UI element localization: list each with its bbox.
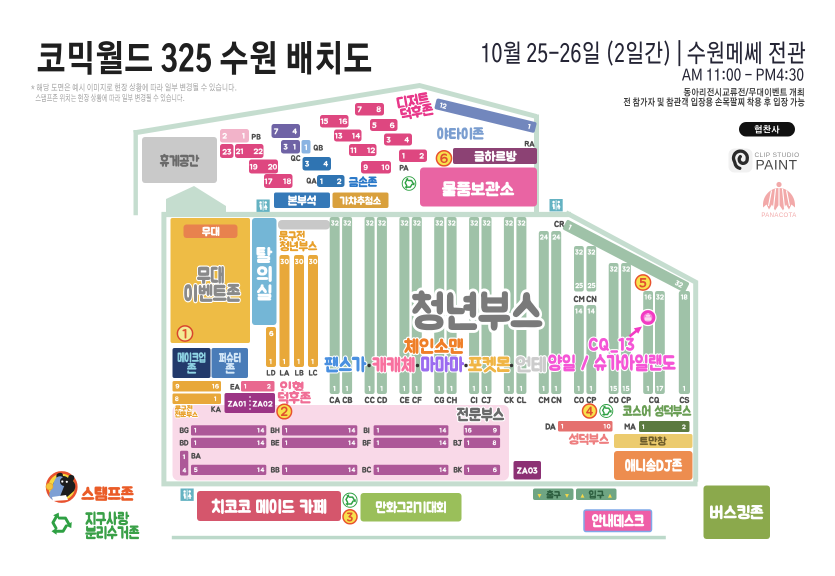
svg-text:스탬프존: 스탬프존 <box>81 486 134 504</box>
svg-text:가챠추첨소: 가챠추첨소 <box>340 196 382 208</box>
svg-text:1: 1 <box>646 386 650 393</box>
svg-text:1: 1 <box>507 386 511 393</box>
svg-text:18: 18 <box>283 178 291 186</box>
svg-text:CS: CS <box>679 396 689 405</box>
svg-text:물품보관소: 물품보관소 <box>442 180 514 199</box>
svg-text:1: 1 <box>311 359 315 366</box>
svg-text:14: 14 <box>257 428 264 435</box>
svg-text:전문부스: 전문부스 <box>175 411 198 419</box>
svg-text:PA: PA <box>399 165 409 173</box>
svg-text:QB: QB <box>313 145 323 153</box>
svg-text:CB: CB <box>342 396 353 405</box>
svg-text:6: 6 <box>440 152 448 166</box>
svg-text:14: 14 <box>348 440 355 447</box>
svg-text:분리수거존: 분리수거존 <box>85 525 139 542</box>
svg-text:EA: EA <box>230 384 240 392</box>
svg-text:▼: ▼ <box>564 493 570 499</box>
svg-text:14: 14 <box>574 309 582 316</box>
svg-text:32: 32 <box>342 221 352 228</box>
svg-text:글하르방: 글하르방 <box>474 150 517 164</box>
svg-text:1: 1 <box>484 386 488 393</box>
svg-text:CQ: CQ <box>649 396 660 405</box>
svg-text:1: 1 <box>437 386 441 393</box>
svg-text:32: 32 <box>412 221 422 228</box>
svg-text:14: 14 <box>348 428 355 435</box>
svg-text:CP: CP <box>621 396 632 405</box>
svg-text:12: 12 <box>367 147 375 155</box>
svg-text:16: 16 <box>212 384 220 391</box>
svg-text:성덕부스: 성덕부스 <box>569 433 609 447</box>
svg-text:의: 의 <box>257 265 273 285</box>
svg-text:협찬사: 협찬사 <box>754 125 780 135</box>
svg-text:32: 32 <box>482 221 492 228</box>
svg-text:KA: KA <box>211 406 222 414</box>
svg-text:1: 1 <box>367 386 371 393</box>
svg-text:CO: CO <box>574 396 584 405</box>
svg-text:6: 6 <box>269 331 274 338</box>
svg-text:▼: ▼ <box>537 493 543 499</box>
svg-text:팬스가: 팬스가 <box>324 356 366 375</box>
svg-text:MA: MA <box>624 423 636 432</box>
svg-text:30: 30 <box>295 259 303 266</box>
svg-text:무대: 무대 <box>202 227 220 239</box>
svg-text:2: 2 <box>681 424 686 431</box>
svg-text:32: 32 <box>377 221 387 228</box>
svg-text:32: 32 <box>655 295 665 302</box>
svg-text:1: 1 <box>345 386 349 393</box>
svg-text:14: 14 <box>257 467 264 474</box>
svg-text:BA: BA <box>191 453 201 461</box>
svg-text:17: 17 <box>655 386 663 393</box>
svg-text:1: 1 <box>183 454 186 461</box>
svg-text:▲: ▲ <box>607 493 613 499</box>
svg-text:4: 4 <box>323 161 328 169</box>
svg-text:3: 3 <box>386 136 390 144</box>
svg-text:2: 2 <box>419 153 424 161</box>
svg-text:애니송DJ존: 애니송DJ존 <box>625 458 683 475</box>
svg-text:5: 5 <box>371 122 377 130</box>
svg-text:QC: QC <box>290 155 301 163</box>
svg-text:1: 1 <box>472 386 476 393</box>
svg-text:전문부스: 전문부스 <box>457 406 505 424</box>
svg-text:7: 7 <box>357 106 362 114</box>
svg-text:16: 16 <box>465 428 473 435</box>
svg-text:32: 32 <box>365 221 375 228</box>
svg-text:코믹월드 325 수원 배치도: 코믹월드 325 수원 배치도 <box>37 40 373 79</box>
svg-text:스탬프존 위치는 현장 상황에 따라 일부 변경될 수 있습: 스탬프존 위치는 현장 상황에 따라 일부 변경될 수 있습니다. <box>35 93 185 103</box>
svg-text:휴게공간: 휴게공간 <box>160 154 200 169</box>
svg-text:1: 1 <box>194 428 197 435</box>
svg-text:7: 7 <box>274 128 279 136</box>
svg-text:ZA03: ZA03 <box>517 467 538 476</box>
svg-text:1: 1 <box>285 467 288 474</box>
svg-text:덕후존: 덕후존 <box>277 391 311 406</box>
svg-text:18: 18 <box>680 295 688 302</box>
svg-text:BD: BD <box>179 440 189 448</box>
svg-text:▲: ▲ <box>580 493 586 499</box>
svg-text:30: 30 <box>280 259 288 266</box>
svg-text:1: 1 <box>519 386 523 393</box>
svg-text:LA: LA <box>280 370 290 378</box>
svg-text:CF: CF <box>412 396 422 405</box>
svg-text:ZA01: ZA01 <box>228 401 247 409</box>
svg-text:1: 1 <box>402 153 405 161</box>
svg-text:CN: CN <box>586 295 597 304</box>
svg-text:8: 8 <box>175 396 179 403</box>
svg-text:4: 4 <box>292 128 297 136</box>
svg-text:안내데스크: 안내데스크 <box>592 513 645 530</box>
svg-text:CJ: CJ <box>481 396 492 405</box>
svg-text:32: 32 <box>621 267 631 274</box>
svg-text:1: 1 <box>449 386 453 393</box>
svg-text:2: 2 <box>222 133 227 141</box>
svg-text:1: 1 <box>414 386 418 393</box>
svg-text:15: 15 <box>609 386 618 393</box>
svg-text:1: 1 <box>304 144 307 152</box>
svg-text:8: 8 <box>376 106 381 114</box>
svg-text:9: 9 <box>363 164 368 172</box>
svg-text:존: 존 <box>225 362 235 376</box>
svg-text:14: 14 <box>440 440 447 447</box>
svg-text:4: 4 <box>181 467 186 474</box>
svg-text:24: 24 <box>540 235 548 242</box>
svg-text:1: 1 <box>682 386 686 393</box>
svg-text:1: 1 <box>467 467 470 474</box>
svg-text:25: 25 <box>575 283 584 290</box>
svg-text:8: 8 <box>493 440 497 447</box>
svg-text:5: 5 <box>194 467 198 474</box>
svg-text:32: 32 <box>517 221 527 228</box>
svg-text:17: 17 <box>264 178 272 186</box>
svg-text:출구: 출구 <box>546 490 561 500</box>
svg-text:CM: CM <box>538 396 549 405</box>
svg-text:CC: CC <box>364 396 375 405</box>
svg-text:전 참가자 및 참관객 입장용 손목팔찌 착용 후 입장 가: 전 참가자 및 참관객 입장용 손목팔찌 착용 후 입장 가능 <box>623 97 805 108</box>
svg-text:CL: CL <box>516 396 526 405</box>
svg-text:1: 1 <box>554 386 558 393</box>
svg-text:2: 2 <box>266 384 271 391</box>
svg-text:PAINT: PAINT <box>755 157 797 172</box>
svg-text:BI: BI <box>363 427 370 435</box>
svg-text:CD: CD <box>377 396 388 405</box>
svg-text:19: 19 <box>250 163 258 171</box>
svg-text:1: 1 <box>293 144 296 152</box>
svg-text:9: 9 <box>175 384 179 391</box>
svg-text:32: 32 <box>504 221 514 228</box>
svg-text:만화그리기대회: 만화그리기대회 <box>376 500 447 515</box>
svg-text:ZA02: ZA02 <box>252 401 272 409</box>
svg-text:BE: BE <box>271 440 280 448</box>
svg-text:야타이존: 야타이존 <box>437 127 484 142</box>
svg-text:이벤트존: 이벤트존 <box>184 283 241 306</box>
svg-text:32: 32 <box>609 267 619 274</box>
svg-text:1: 1 <box>242 133 245 141</box>
svg-text:AM 11:00 - PM4:30: AM 11:00 - PM4:30 <box>681 68 804 85</box>
svg-text:1: 1 <box>214 396 217 403</box>
svg-text:1: 1 <box>285 440 288 447</box>
svg-text:2: 2 <box>280 406 288 419</box>
svg-text:1: 1 <box>320 178 323 186</box>
svg-text:1: 1 <box>402 386 406 393</box>
svg-text:4: 4 <box>404 136 409 144</box>
svg-text:24: 24 <box>552 235 560 242</box>
svg-text:14: 14 <box>352 132 360 140</box>
svg-text:버스킹존: 버스킹존 <box>709 504 763 522</box>
svg-text:1: 1 <box>269 359 273 366</box>
svg-text:1: 1 <box>377 428 380 435</box>
svg-text:CA: CA <box>329 396 340 405</box>
svg-text:* 해당 도면은 예시 이미지로 현장 상황에 따라 일부: * 해당 도면은 예시 이미지로 현장 상황에 따라 일부 변경될 수 있습니다… <box>31 83 237 93</box>
svg-text:CN: CN <box>551 396 562 405</box>
svg-text:PB: PB <box>251 134 261 142</box>
svg-text:20: 20 <box>268 163 279 171</box>
svg-text:CG: CG <box>434 396 444 405</box>
svg-text:체인소맨: 체인소맨 <box>404 338 464 357</box>
svg-text:32: 32 <box>574 250 584 257</box>
svg-text:4: 4 <box>586 406 594 419</box>
svg-text:14: 14 <box>440 467 447 474</box>
svg-text:청년부스: 청년부스 <box>412 290 543 338</box>
svg-text:1: 1 <box>380 386 384 393</box>
svg-text:LD: LD <box>266 370 276 378</box>
svg-text:탈: 탈 <box>256 246 273 266</box>
svg-text:1: 1 <box>297 359 301 366</box>
svg-text:1: 1 <box>332 386 336 393</box>
svg-text:1: 1 <box>642 424 645 431</box>
svg-text:PANACOTA: PANACOTA <box>761 213 796 219</box>
svg-text:1: 1 <box>577 386 581 393</box>
svg-text:1: 1 <box>589 386 593 393</box>
svg-text:23: 23 <box>222 148 231 156</box>
svg-text:3: 3 <box>305 161 309 169</box>
svg-text:22: 22 <box>253 148 263 156</box>
svg-text:QA: QA <box>306 178 317 186</box>
svg-text:1: 1 <box>181 327 188 341</box>
svg-text:32: 32 <box>434 221 444 228</box>
svg-text:LB: LB <box>295 370 304 378</box>
svg-text:동아리전시교류전/무대이벤트 개최: 동아리전시교류전/무대이벤트 개최 <box>683 88 804 98</box>
svg-text:3: 3 <box>347 511 354 524</box>
svg-text:언테: 언테 <box>515 355 547 375</box>
svg-text:입구: 입구 <box>589 490 605 500</box>
svg-text:치코코 메이드 카페: 치코코 메이드 카페 <box>211 498 326 517</box>
svg-text:10: 10 <box>381 164 390 172</box>
svg-text:청년부스: 청년부스 <box>280 241 318 254</box>
svg-text:CI: CI <box>470 396 478 405</box>
svg-text:6: 6 <box>390 122 395 130</box>
svg-text:1: 1 <box>541 386 545 393</box>
svg-text:3: 3 <box>283 144 287 152</box>
svg-text:1: 1 <box>467 440 470 447</box>
svg-text:코스어 성덕부스: 코스어 성덕부스 <box>623 404 692 419</box>
svg-text:BH: BH <box>270 427 280 435</box>
svg-text:25: 25 <box>587 283 596 290</box>
svg-text:CM: CM <box>573 295 584 304</box>
svg-text:1: 1 <box>561 424 564 431</box>
svg-text:13: 13 <box>335 132 343 140</box>
svg-text:10월 25-26일 (2일간) | 수원메쎄 전관: 10월 25-26일 (2일간) | 수원메쎄 전관 <box>480 40 806 68</box>
svg-text:1: 1 <box>282 359 286 366</box>
svg-text:CO: CO <box>608 396 618 405</box>
svg-text:DA: DA <box>545 423 556 432</box>
svg-text:BB: BB <box>271 467 280 475</box>
svg-text:32: 32 <box>586 250 596 257</box>
svg-text:존: 존 <box>187 362 197 376</box>
svg-text:RA: RA <box>524 141 535 149</box>
svg-text:15: 15 <box>321 118 329 126</box>
svg-text:32: 32 <box>400 221 410 228</box>
svg-text:마마마: 마마마 <box>420 356 464 375</box>
svg-text:금손존: 금손존 <box>349 176 378 190</box>
svg-text:실: 실 <box>257 283 272 303</box>
svg-text:15: 15 <box>622 386 631 393</box>
svg-text:2: 2 <box>337 178 342 186</box>
svg-text:1: 1 <box>377 467 380 474</box>
svg-text:BG: BG <box>179 427 188 435</box>
svg-text:CE: CE <box>399 396 409 405</box>
svg-text:14: 14 <box>348 467 355 474</box>
svg-text:1: 1 <box>285 428 288 435</box>
svg-text:BK: BK <box>453 467 462 475</box>
svg-text:16: 16 <box>339 118 347 126</box>
svg-text:14: 14 <box>587 309 595 316</box>
svg-text:1: 1 <box>194 440 197 447</box>
svg-text:캐캐체: 캐캐체 <box>372 356 416 375</box>
svg-text:10: 10 <box>604 424 611 431</box>
svg-text:트만창: 트만창 <box>640 436 668 448</box>
svg-text:1: 1 <box>244 384 247 391</box>
svg-text:32: 32 <box>469 221 479 228</box>
svg-text:30: 30 <box>309 259 317 266</box>
svg-text:BF: BF <box>362 440 371 448</box>
svg-text:21: 21 <box>236 148 244 156</box>
svg-text:32: 32 <box>330 221 340 228</box>
svg-text:9: 9 <box>493 428 497 435</box>
svg-text:14: 14 <box>440 428 447 435</box>
svg-text:BJ: BJ <box>453 440 463 448</box>
svg-text:5: 5 <box>639 276 647 290</box>
svg-text:양일 / 슈가아일랜도: 양일 / 슈가아일랜도 <box>548 354 676 374</box>
svg-text:1: 1 <box>377 440 380 447</box>
svg-text:본부석: 본부석 <box>288 195 316 208</box>
svg-text:포켓몬: 포켓몬 <box>468 355 511 375</box>
svg-text:CH: CH <box>446 396 456 405</box>
svg-text:32: 32 <box>447 221 457 228</box>
svg-text:CK: CK <box>504 396 514 405</box>
svg-text:BC: BC <box>362 467 372 475</box>
svg-text:16: 16 <box>644 295 653 302</box>
svg-text:CQ_13: CQ_13 <box>589 338 635 355</box>
svg-text:LC: LC <box>309 370 319 378</box>
svg-text:14: 14 <box>257 440 264 447</box>
svg-text:11: 11 <box>350 147 357 155</box>
